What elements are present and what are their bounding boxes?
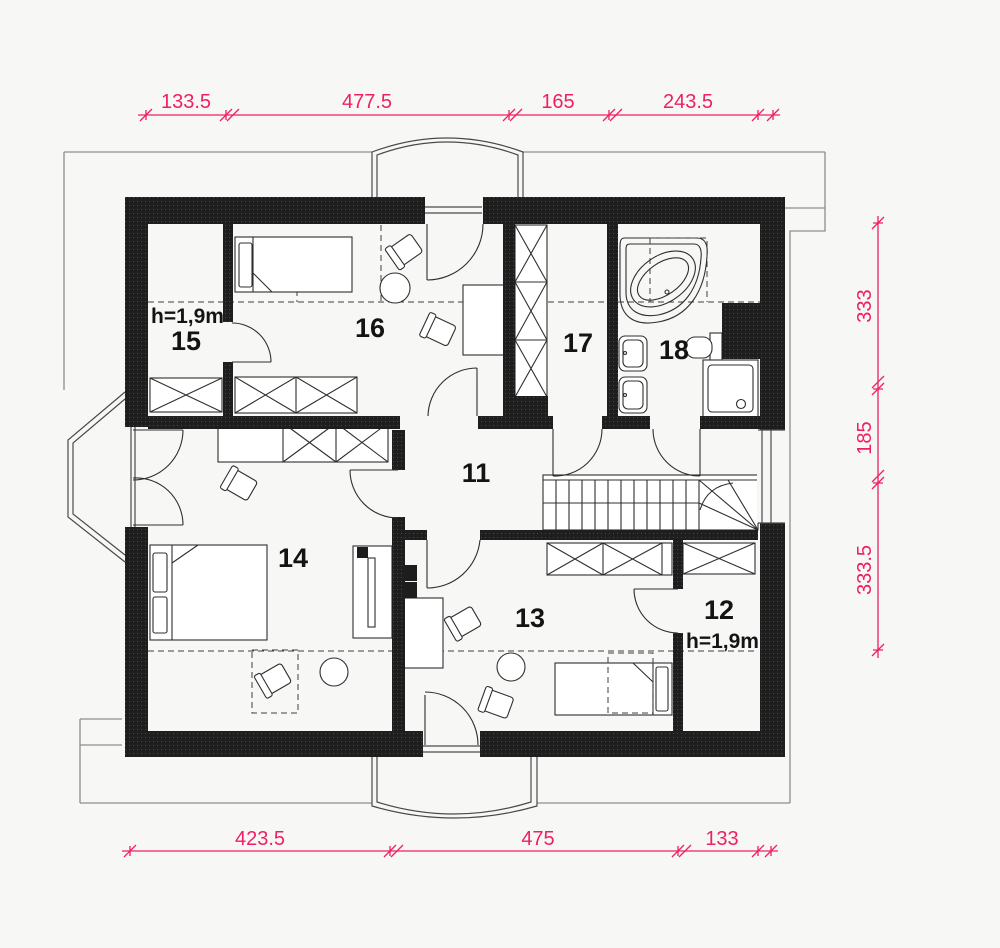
height-note-room12: h=1,9m <box>686 630 759 653</box>
chimney-block-room13 <box>405 565 417 581</box>
wardrobe-room12 <box>683 543 755 574</box>
dim-top-4: 243.5 <box>663 91 713 113</box>
tv-cabinet-room14 <box>353 546 392 638</box>
desk-room16 <box>463 285 507 355</box>
dim-top-2: 477.5 <box>342 91 392 113</box>
dim-right-1: 333 <box>854 289 876 322</box>
floor-plan-drawing: 11 12 13 14 15 16 17 18 h=1,9m h=1,9m 13… <box>0 0 1000 948</box>
room-label-11: 11 <box>462 458 491 488</box>
wardrobe-room13 <box>547 543 672 575</box>
chimney-block-bathroom <box>722 303 760 359</box>
room-label-16: 16 <box>355 313 385 343</box>
room-label-18: 18 <box>659 335 689 365</box>
dim-top-1: 133.5 <box>161 91 211 113</box>
room-label-15: 15 <box>171 326 201 356</box>
round-table-room14 <box>320 658 348 686</box>
dim-bottom-1: 423.5 <box>235 828 285 850</box>
single-bed-room13 <box>555 663 672 715</box>
round-table-room13 <box>497 653 525 681</box>
room-label-13: 13 <box>515 603 545 633</box>
toilet-icon <box>686 333 722 361</box>
wardrobe-room15 <box>150 378 222 412</box>
room-label-14: 14 <box>278 543 308 573</box>
desk-room13 <box>402 598 443 668</box>
shower-icon <box>703 360 758 417</box>
dim-right-2: 185 <box>854 421 876 454</box>
dim-bottom-3: 133 <box>705 828 738 850</box>
height-note-room15: h=1,9m <box>151 305 224 328</box>
bottom-dormer-window <box>372 757 537 818</box>
chimney-block-room13 <box>405 582 417 598</box>
top-dormer-window <box>372 138 523 197</box>
double-bed-room14 <box>150 545 267 640</box>
single-bed-room16 <box>235 237 352 292</box>
staircase <box>543 475 758 530</box>
dim-right-3: 333.5 <box>854 545 876 595</box>
dim-top-3: 165 <box>541 91 574 113</box>
dim-bottom-2: 475 <box>521 828 554 850</box>
room-label-12: 12 <box>704 595 734 625</box>
washbasin-icon <box>619 377 647 413</box>
washbasin-icon <box>619 336 647 371</box>
floor-plan-page: 11 12 13 14 15 16 17 18 h=1,9m h=1,9m 13… <box>0 0 1000 948</box>
wardrobe-room16 <box>235 377 357 413</box>
room-label-17: 17 <box>563 328 593 358</box>
stair-window <box>757 430 787 523</box>
round-table-room16 <box>380 273 410 303</box>
wardrobe-room17 <box>515 225 547 397</box>
